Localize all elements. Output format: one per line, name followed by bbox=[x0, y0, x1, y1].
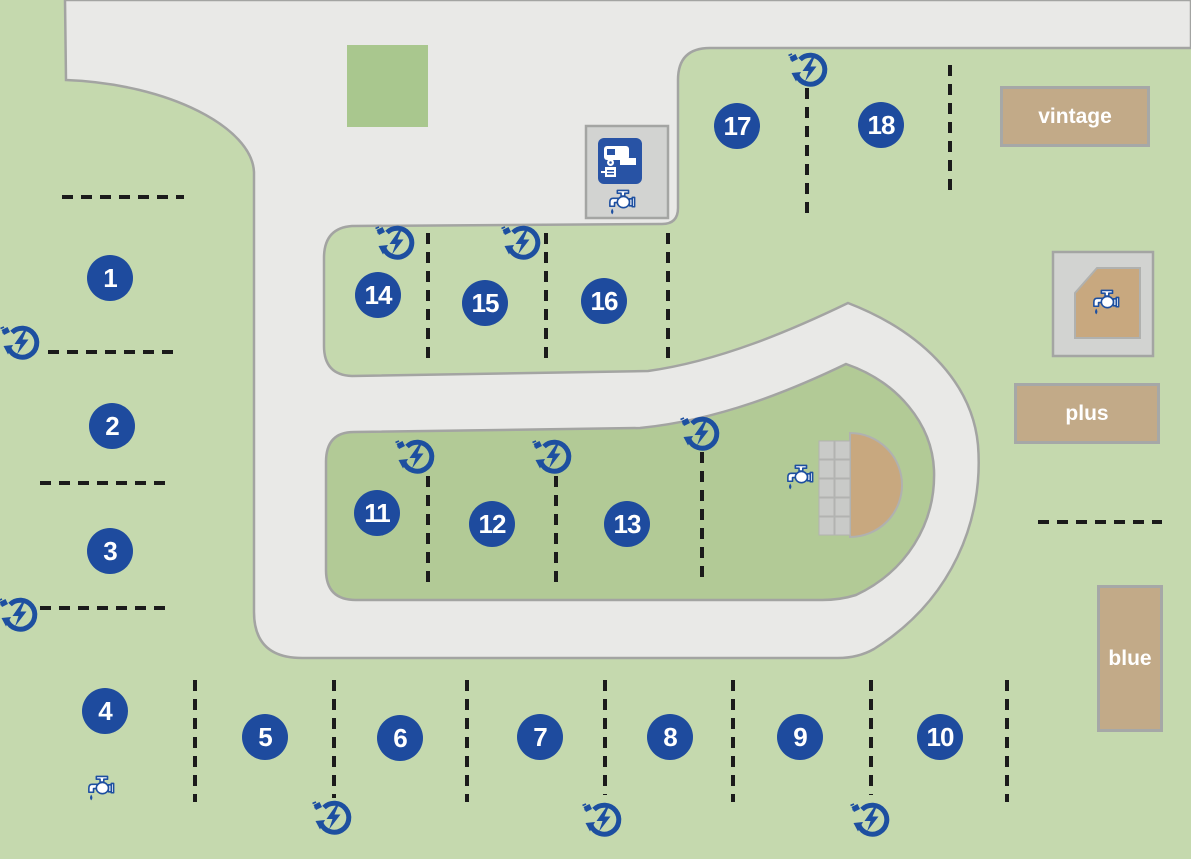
pitch-divider bbox=[193, 680, 197, 802]
pitch-divider bbox=[40, 606, 165, 610]
pitch-marker-15: 15 bbox=[462, 280, 508, 326]
water-tap-icon bbox=[608, 189, 636, 217]
pitch-divider bbox=[426, 233, 430, 358]
pitch-divider bbox=[603, 680, 607, 795]
electric-hookup-icon bbox=[788, 48, 832, 92]
pitch-divider bbox=[426, 476, 430, 590]
electric-hookup-icon bbox=[680, 412, 724, 456]
area-label-text: blue bbox=[1108, 647, 1151, 671]
pitch-marker-18: 18 bbox=[858, 102, 904, 148]
pitch-marker-5: 5 bbox=[242, 714, 288, 760]
pitch-divider bbox=[948, 65, 952, 195]
area-label-text: vintage bbox=[1038, 105, 1112, 129]
pitch-marker-11: 11 bbox=[354, 490, 400, 536]
electric-hookup-icon bbox=[532, 435, 576, 479]
area-label-text: plus bbox=[1065, 402, 1108, 426]
pitch-divider bbox=[48, 350, 173, 354]
water-tap-icon bbox=[786, 464, 814, 492]
pitch-divider bbox=[465, 680, 469, 802]
pitch-divider bbox=[40, 481, 165, 485]
pitch-marker-9: 9 bbox=[777, 714, 823, 760]
area-label-vintage: vintage bbox=[1000, 86, 1150, 147]
pitch-marker-3: 3 bbox=[87, 528, 133, 574]
electric-hookup-icon bbox=[0, 321, 44, 365]
pitch-marker-16: 16 bbox=[581, 278, 627, 324]
electric-hookup-icon bbox=[395, 435, 439, 479]
electric-hookup-icon bbox=[850, 798, 894, 842]
pitch-divider bbox=[62, 195, 184, 199]
electric-hookup-icon bbox=[0, 593, 42, 637]
pitch-marker-1: 1 bbox=[87, 255, 133, 301]
pitch-divider bbox=[666, 233, 670, 358]
pitch-marker-14: 14 bbox=[355, 272, 401, 318]
electric-hookup-icon bbox=[375, 221, 419, 265]
pitch-marker-6: 6 bbox=[377, 715, 423, 761]
pitch-marker-12: 12 bbox=[469, 501, 515, 547]
pitch-marker-17: 17 bbox=[714, 103, 760, 149]
pitch-marker-2: 2 bbox=[89, 403, 135, 449]
green-patch bbox=[347, 45, 428, 127]
water-tap-icon bbox=[87, 775, 115, 803]
pitch-divider bbox=[700, 452, 704, 580]
pitch-divider bbox=[805, 88, 809, 213]
pitch-marker-13: 13 bbox=[604, 501, 650, 547]
pitch-marker-8: 8 bbox=[647, 714, 693, 760]
pitch-divider bbox=[554, 476, 558, 584]
pitch-marker-4: 4 bbox=[82, 688, 128, 734]
electric-hookup-icon bbox=[582, 798, 626, 842]
area-label-plus: plus bbox=[1014, 383, 1160, 444]
water-tap-icon bbox=[1092, 289, 1120, 317]
pitch-divider bbox=[869, 680, 873, 795]
pitch-divider bbox=[731, 680, 735, 802]
motorhome-service-icon bbox=[597, 137, 643, 185]
pitch-divider bbox=[1005, 680, 1009, 802]
electric-hookup-icon bbox=[312, 796, 356, 840]
campsite-map: 1 2 3 4 5 6 7 8 9 10 11 12 13 14 15 16 1… bbox=[0, 0, 1191, 859]
pitch-divider bbox=[332, 680, 336, 798]
pitch-divider bbox=[1038, 520, 1162, 524]
pitch-marker-10: 10 bbox=[917, 714, 963, 760]
area-label-blue: blue bbox=[1097, 585, 1163, 732]
electric-hookup-icon bbox=[501, 221, 545, 265]
pitch-marker-7: 7 bbox=[517, 714, 563, 760]
